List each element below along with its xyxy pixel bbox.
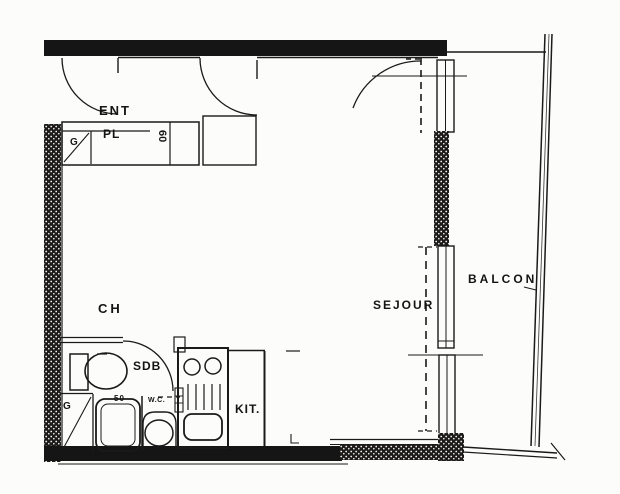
label-shower-dim: 50: [114, 395, 125, 403]
balcony-door-swing-arc: [353, 61, 421, 108]
balcony-railing-line-2: [535, 34, 549, 446]
balcony-bottom-edge-2: [463, 452, 557, 458]
closet-second-box: [203, 116, 256, 165]
left-wall: [44, 124, 61, 462]
hob-burner-right: [205, 358, 221, 374]
right-wall-corner: [438, 433, 464, 461]
label-balcony: BALCON: [468, 273, 537, 285]
label-bedroom: CH: [98, 302, 123, 315]
balcony-railing-line-1: [531, 34, 545, 446]
label-kitchen: KIT.: [235, 403, 260, 415]
kitchen-sink: [184, 414, 222, 440]
wc-bowl: [145, 420, 173, 446]
label-living-room: SEJOUR: [373, 299, 434, 311]
wc-enclosure: [143, 412, 176, 450]
hob-burner-left: [184, 359, 200, 375]
closet-pl: [62, 122, 199, 165]
kitchen-floor-bracket: [291, 434, 299, 443]
label-duct-bottom: G: [63, 402, 71, 412]
shower-tray-inner: [101, 404, 135, 446]
right-wall-pier: [434, 131, 449, 246]
balcony-bottom-edge-1: [463, 447, 557, 453]
balcony-railing-joint: [524, 287, 536, 290]
label-closet-depth: 60: [156, 130, 167, 142]
floor-plan-drawing: [0, 0, 620, 494]
label-closet: PL: [103, 128, 120, 140]
top-wall: [44, 40, 447, 56]
hall-door-swing-arc: [200, 58, 257, 115]
floor-plan-scan: ENT PL 60 G CH SDB G 50 W.C. KIT. SEJOUR…: [0, 0, 620, 494]
label-wc: W.C.: [148, 397, 165, 404]
label-duct-top: G: [70, 138, 78, 148]
toilet-bowl: [85, 353, 127, 389]
label-bathroom: SDB: [133, 360, 161, 372]
kitchen-counter-notch: [174, 337, 185, 352]
balcony-railing-line-3: [539, 34, 552, 447]
label-entrance: ENT: [99, 104, 131, 117]
